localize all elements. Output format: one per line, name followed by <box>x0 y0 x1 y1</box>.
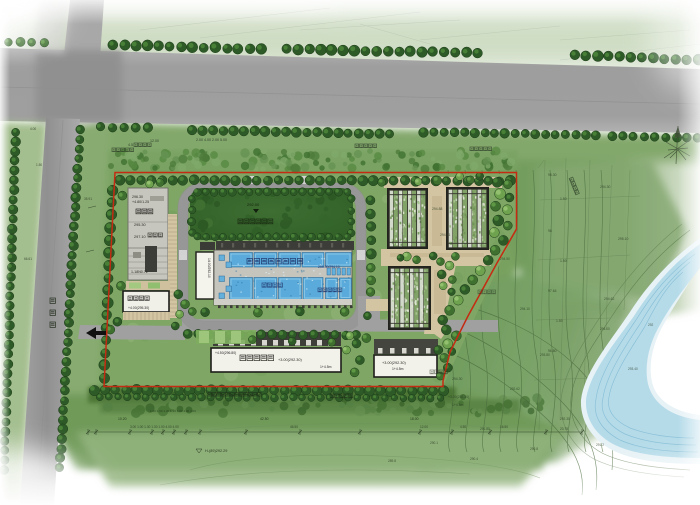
svg-text:46.50: 46.50 <box>290 425 298 429</box>
svg-text:35.91: 35.91 <box>84 197 92 201</box>
svg-text:294.30: 294.30 <box>452 377 462 381</box>
svg-text:294.88: 294.88 <box>432 207 442 211</box>
svg-text:96.30: 96.30 <box>548 173 557 177</box>
svg-text:42.50: 42.50 <box>260 417 269 421</box>
svg-text:292.00: 292.00 <box>247 202 260 207</box>
svg-text:292.62: 292.62 <box>510 387 520 391</box>
svg-text:+4.50(296.80): +4.50(296.80) <box>215 351 236 355</box>
svg-text:+3.00(292.30): +3.00(292.30) <box>382 361 406 365</box>
svg-text:H-(89)292.29: H-(89)292.29 <box>205 449 227 453</box>
svg-text:292: 292 <box>648 323 654 327</box>
svg-text:291.2: 291.2 <box>596 443 604 447</box>
svg-text:296.30/294.10: 296.30/294.10 <box>318 265 340 269</box>
svg-text:294.61: 294.61 <box>440 233 450 237</box>
svg-text:293.80: 293.80 <box>540 353 550 357</box>
svg-text:297.10: 297.10 <box>134 235 146 239</box>
svg-text:290.4: 290.4 <box>470 457 478 461</box>
svg-text:+3.00(292.30): +3.00(292.30) <box>448 395 469 399</box>
svg-text:290.1: 290.1 <box>430 441 438 445</box>
svg-text:291.80: 291.80 <box>480 427 490 431</box>
svg-text:4.00: 4.00 <box>30 127 36 131</box>
svg-text:2.00 4.00 2.00 5.00: 2.00 4.00 2.00 5.00 <box>196 138 227 142</box>
svg-text:295.10: 295.10 <box>618 237 628 241</box>
svg-text:+4.80/1.25: +4.80/1.25 <box>132 200 149 204</box>
svg-text:16.50: 16.50 <box>500 425 508 429</box>
svg-text:1.50: 1.50 <box>560 259 567 263</box>
svg-text:1-18N0.7k: 1-18N0.7k <box>131 270 148 274</box>
svg-text:66.61: 66.61 <box>24 257 32 261</box>
svg-text:+3.00(292.30): +3.00(292.30) <box>278 358 302 362</box>
svg-text:292.30: 292.30 <box>560 417 570 421</box>
svg-text:294.10: 294.10 <box>520 307 530 311</box>
svg-text:4.50: 4.50 <box>460 425 466 429</box>
svg-text:295.30: 295.30 <box>134 223 146 227</box>
svg-text:290.8: 290.8 <box>530 447 538 451</box>
svg-text:1.50: 1.50 <box>36 163 42 167</box>
svg-text:4.5: 4.5 <box>128 143 133 147</box>
svg-text:14.00/292.10: 14.00/292.10 <box>207 258 211 278</box>
svg-text:294.50: 294.50 <box>500 257 510 261</box>
svg-text:23.75: 23.75 <box>560 427 568 431</box>
svg-text:1.50: 1.50 <box>560 197 567 201</box>
svg-text:+4.00(295.30): +4.00(295.30) <box>128 306 149 310</box>
svg-text:1+4.5m: 1+4.5m <box>452 403 464 407</box>
svg-text:1+4.5m: 1+4.5m <box>320 365 332 369</box>
svg-text:294.30: 294.30 <box>600 185 610 189</box>
svg-text:1.00 1.00 1.30 1.30 1.00 4.00: 1.00 1.00 1.30 1.30 1.00 4.00 4.00 <box>150 409 196 413</box>
svg-text:18.00: 18.00 <box>410 417 419 421</box>
svg-text:98: 98 <box>548 229 552 233</box>
svg-text:289.8: 289.8 <box>388 459 396 463</box>
svg-text:294.62: 294.62 <box>604 297 614 301</box>
svg-text:10.20: 10.20 <box>118 417 127 421</box>
svg-text:97.64: 97.64 <box>548 289 557 293</box>
svg-text:294.00: 294.00 <box>600 327 610 331</box>
svg-text:293.40: 293.40 <box>628 367 638 371</box>
svg-text:1.50: 1.50 <box>556 319 563 323</box>
svg-text:3.00 1.00 1.30 1.30 1.00 4.00: 3.00 1.00 1.30 1.30 1.00 4.00 4.00 <box>130 425 179 429</box>
svg-text:12.00: 12.00 <box>150 139 159 143</box>
svg-text:296.30: 296.30 <box>132 195 143 199</box>
svg-text:12.00: 12.00 <box>420 425 428 429</box>
svg-text:1+4.5m: 1+4.5m <box>392 367 404 371</box>
